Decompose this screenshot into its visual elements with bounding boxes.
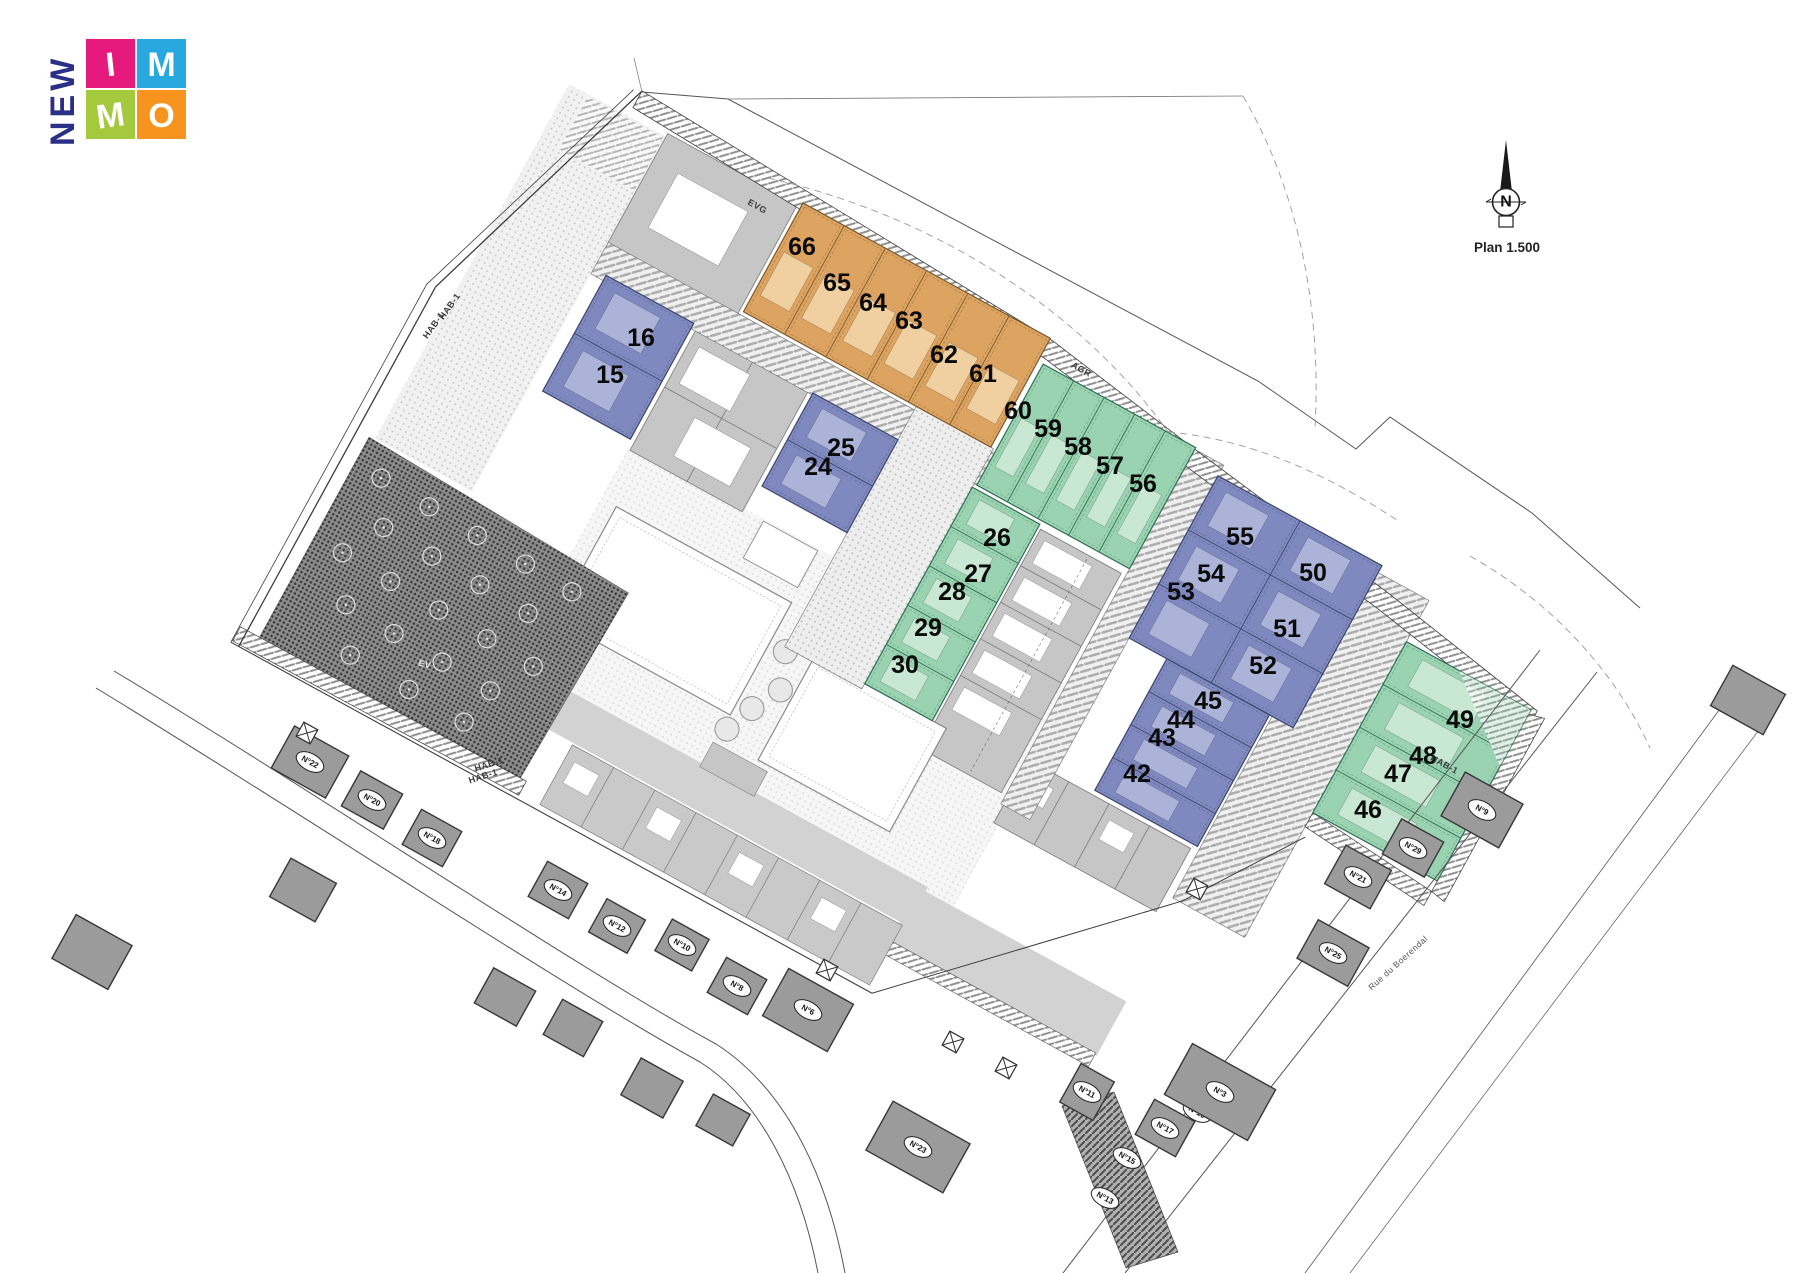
- lot-label-28: 28: [938, 578, 966, 606]
- house-N8: N°8: [707, 957, 767, 1014]
- house: [474, 968, 535, 1026]
- house: [621, 1058, 683, 1118]
- logo-square-o: O: [137, 90, 186, 139]
- house-N23: N°23: [866, 1101, 970, 1193]
- lot-label-43: 43: [1148, 724, 1176, 752]
- lot-label-26: 26: [983, 524, 1011, 552]
- lot-label-61: 61: [969, 360, 997, 388]
- lot-label-66: 66: [788, 233, 816, 261]
- lot-label-60: 60: [1004, 397, 1032, 425]
- site-plan-svg: N°22N°20N°18N°14N°12N°10N°8N°6N°23N°11N°…: [0, 0, 1800, 1273]
- lot-label-42: 42: [1123, 760, 1151, 788]
- logo-square-i: I: [86, 39, 135, 88]
- house: [52, 915, 132, 990]
- logo-square-m: M: [137, 39, 186, 88]
- lot-label-45: 45: [1194, 687, 1222, 715]
- logo-squares: IMMO: [86, 39, 186, 139]
- lot-label-62: 62: [930, 341, 958, 369]
- lot-label-55: 55: [1226, 523, 1254, 551]
- plan-scale-label: Plan 1.500: [1474, 240, 1540, 255]
- lot-label-49: 49: [1446, 706, 1474, 734]
- house-N6: N°6: [763, 968, 854, 1051]
- garage-x-icon: [942, 1031, 964, 1053]
- lot-label-46: 46: [1354, 796, 1382, 824]
- logo-square-m: M: [86, 90, 135, 139]
- house: [1711, 665, 1786, 734]
- site-plan-page: N°22N°20N°18N°14N°12N°10N°8N°6N°23N°11N°…: [0, 0, 1800, 1273]
- lot-label-65: 65: [823, 269, 851, 297]
- lot-label-24: 24: [804, 453, 832, 481]
- logo-vertical-text: NEW: [44, 55, 82, 146]
- lot-label-59: 59: [1034, 415, 1062, 443]
- north-label: N: [1500, 194, 1512, 211]
- lot-label-51: 51: [1273, 615, 1301, 643]
- house-N18: N°18: [402, 809, 462, 866]
- lot-label-50: 50: [1299, 559, 1327, 587]
- north-arrow-spike: [1500, 140, 1512, 192]
- newimmo-logo: NEW IMMO: [44, 39, 186, 146]
- lot-label-30: 30: [891, 651, 919, 679]
- house-N14: N°14: [528, 861, 588, 918]
- lot-label-16: 16: [627, 324, 655, 352]
- north-arrow-base: [1499, 216, 1513, 227]
- lot-label-58: 58: [1064, 433, 1092, 461]
- lot-label-56: 56: [1129, 470, 1157, 498]
- lot-label-53: 53: [1167, 578, 1195, 606]
- logo-letter: M: [147, 46, 175, 84]
- logo-letter: M: [94, 95, 127, 137]
- house-N12: N°12: [589, 899, 646, 954]
- lot-label-27: 27: [964, 560, 992, 588]
- house-N10: N°10: [655, 919, 709, 971]
- house: [543, 999, 603, 1056]
- lot-label-15: 15: [596, 361, 624, 389]
- lot-label-52: 52: [1249, 652, 1277, 680]
- logo-letter: O: [148, 97, 174, 135]
- north-arrow: N: [1486, 140, 1526, 227]
- lot-label-64: 64: [859, 289, 887, 317]
- garage-x-icon: [995, 1057, 1017, 1079]
- house: [696, 1094, 750, 1146]
- lot-label-29: 29: [914, 614, 942, 642]
- lot-label-63: 63: [895, 307, 923, 335]
- house-N20: N°20: [341, 771, 402, 829]
- lot-label-57: 57: [1096, 452, 1124, 480]
- lot-label-47: 47: [1384, 760, 1412, 788]
- lot-label-54: 54: [1197, 560, 1225, 588]
- house: [270, 858, 337, 922]
- house-N21: N°21: [1325, 845, 1392, 909]
- street-name-label: Rue du Boerendal: [1366, 933, 1430, 992]
